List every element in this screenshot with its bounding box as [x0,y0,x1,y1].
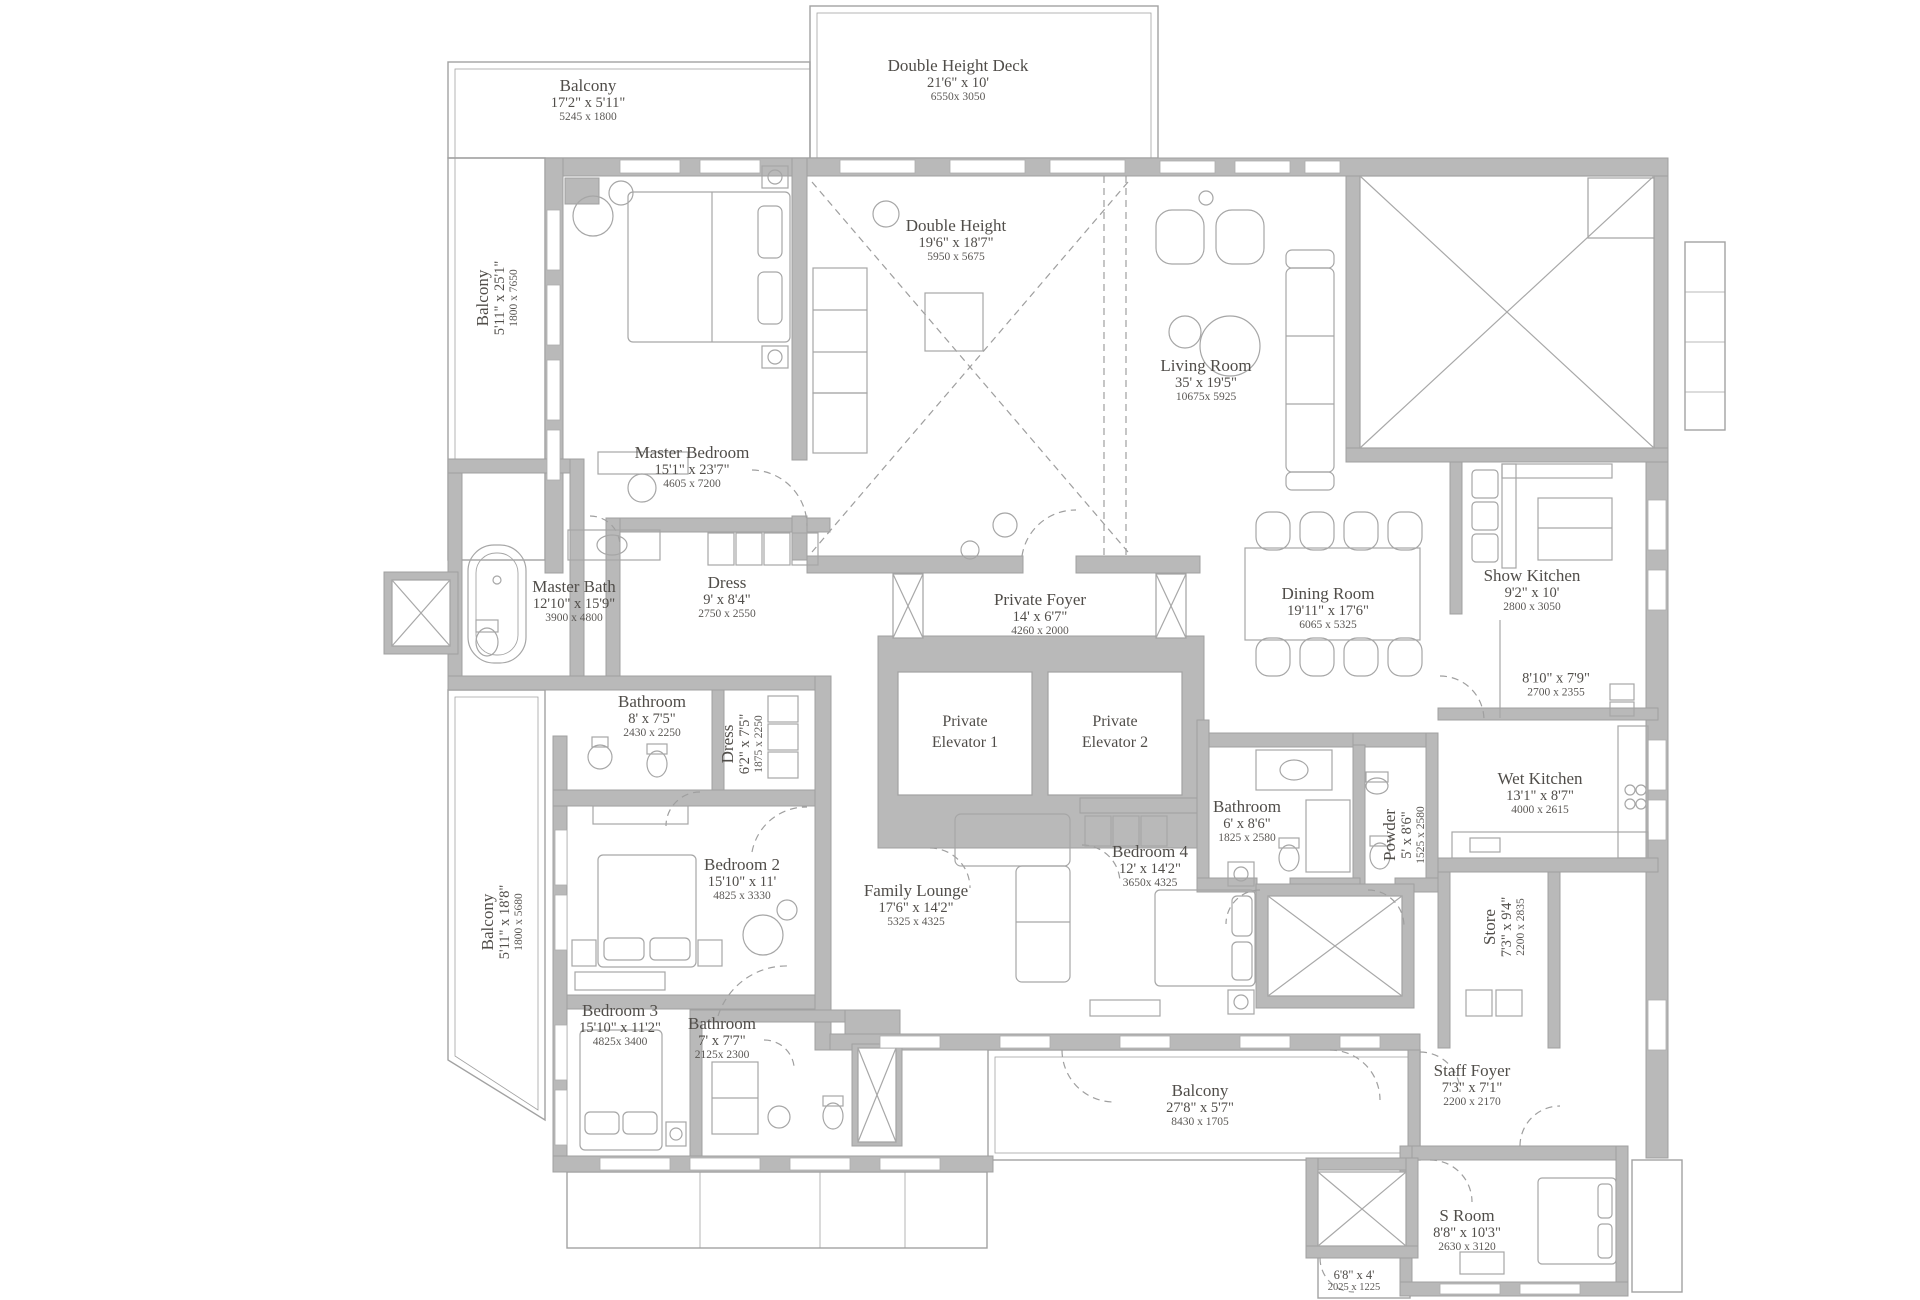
floor-plan-drawing [0,0,1920,1300]
floor-plan-page: Balcony 17'2" x 5'11" 5245 x 1800 Double… [0,0,1920,1300]
